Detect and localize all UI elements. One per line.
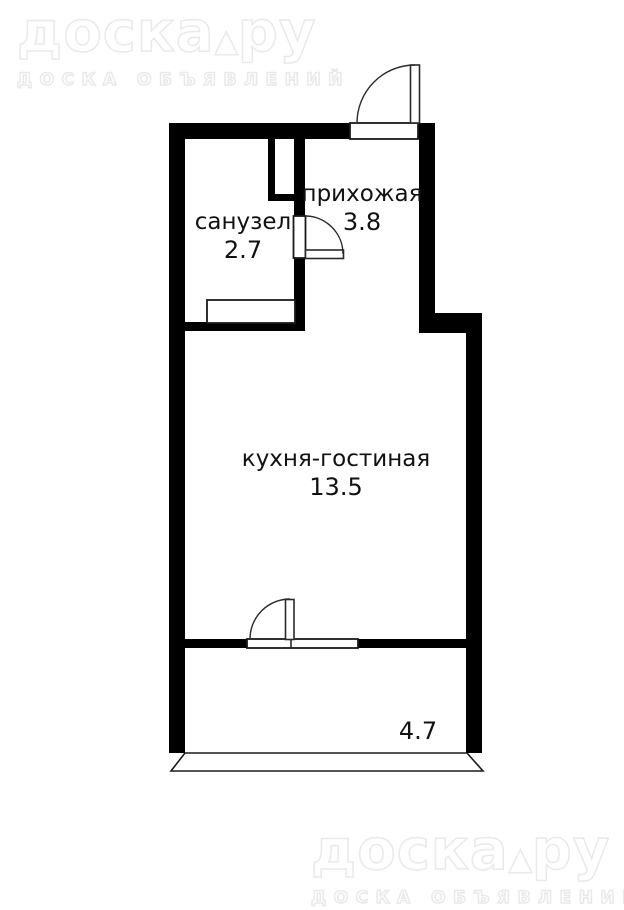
wall-vent-shaft-left xyxy=(268,139,275,201)
room-label-hallway: прихожая 3.8 xyxy=(302,181,423,237)
bathroom-door-leaf xyxy=(306,250,344,259)
room-area: 2.7 xyxy=(195,236,291,265)
balcony-block-opening xyxy=(247,639,358,648)
room-area: 3.8 xyxy=(302,208,423,237)
room-name: кухня-гостиная xyxy=(242,446,430,473)
room-label-bathroom: санузел 2.7 xyxy=(195,209,291,265)
room-area: 4.7 xyxy=(399,717,437,746)
balcony-door-arc xyxy=(250,599,290,639)
entrance-door-leaf xyxy=(411,65,420,123)
room-area: 13.5 xyxy=(242,473,430,502)
wall-balcony-divider-right xyxy=(358,639,467,648)
page-root: доска▲ру ДОСКА ОБЪЯВЛЕНИЙ доска▲ру ДОСКА… xyxy=(0,0,624,910)
wall-left xyxy=(169,123,185,753)
balcony-glazing xyxy=(171,753,483,771)
room-name: прихожая xyxy=(302,181,423,208)
room-label-balcony: 4.7 xyxy=(399,717,437,746)
bathroom-duct-box xyxy=(207,300,295,323)
wall-balcony-divider-left xyxy=(185,639,247,648)
wall-vent-shaft-bottom xyxy=(268,194,305,201)
entrance-door-arc xyxy=(357,65,415,123)
room-label-kitchen-living: кухня-гостиная 13.5 xyxy=(242,446,430,502)
wall-top xyxy=(169,123,350,139)
entrance-door-opening xyxy=(350,123,418,139)
wall-right xyxy=(466,313,482,753)
room-name: санузел xyxy=(195,209,291,236)
balcony-door-leaf xyxy=(286,600,295,640)
